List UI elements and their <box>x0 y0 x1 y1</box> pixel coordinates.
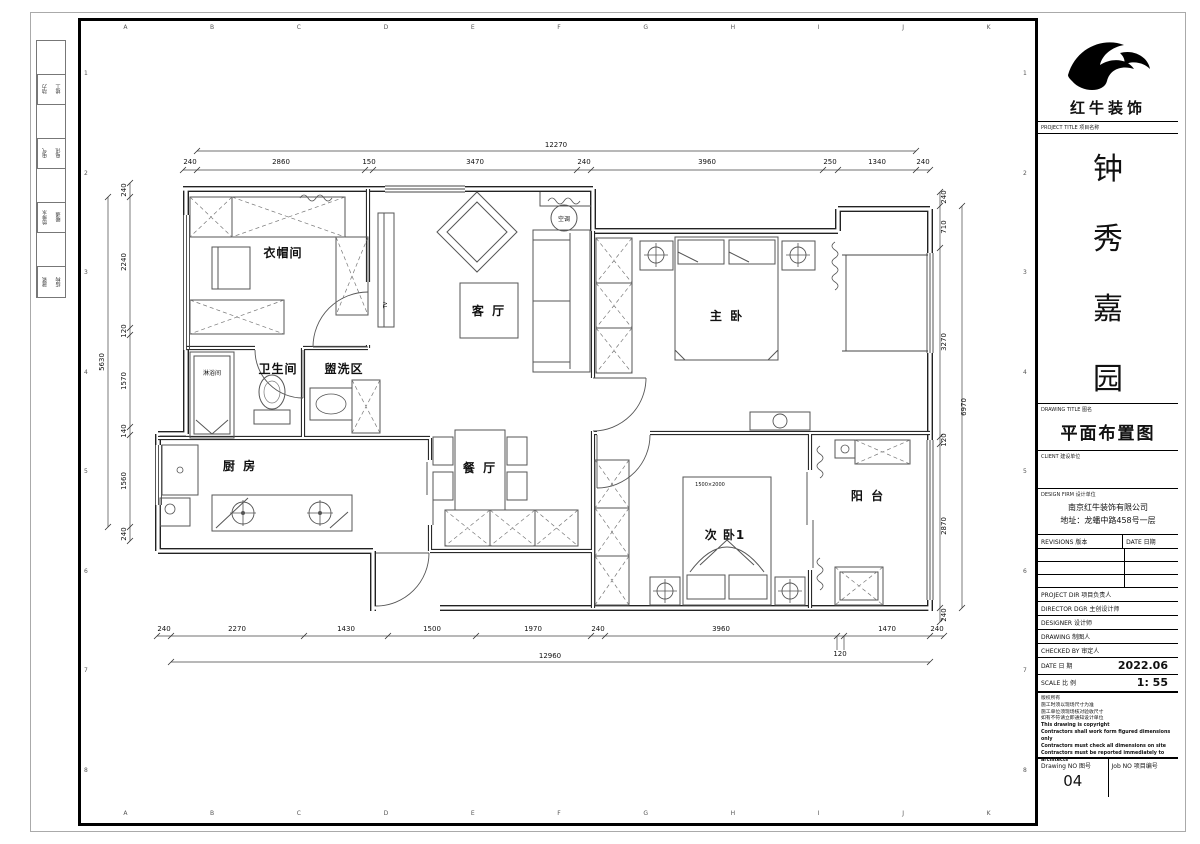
date-value: 2022.06 <box>1118 659 1178 672</box>
dim-text: 3960 <box>712 625 730 633</box>
room-label-living: 客 厅 <box>471 303 506 318</box>
dim-text: 1340 <box>868 158 886 166</box>
firm-address: 地址：龙蟠中路458号一层 <box>1038 515 1178 528</box>
checked-by-label: CHECKED BY 审定人 <box>1038 646 1178 655</box>
kitchen-sink-drain <box>177 467 183 473</box>
drawing-no-value: 04 <box>1041 772 1105 790</box>
scale-label: SCALE 比 例 <box>1038 678 1137 687</box>
drawing-title-section: DRAWING TITLE 图名 平面布置图 <box>1038 404 1178 451</box>
drawing-title: 平面布置图 <box>1038 415 1178 450</box>
dim-text: 240 <box>591 625 604 633</box>
dim-text: 1970 <box>524 625 542 633</box>
dim-total-left: 5630 <box>98 353 106 371</box>
dim-text: 3270 <box>940 333 948 351</box>
dim-text: 240 <box>183 158 196 166</box>
room-label-bathroom: 卫生间 <box>258 361 297 376</box>
project-dir-row: PROJECT DIR 项目负责人 <box>1038 588 1178 602</box>
label-bed-size: 1500×2000 <box>695 482 725 488</box>
job-no-label: Job NO 项目编号 <box>1112 761 1176 770</box>
dim-text: 140 <box>120 424 128 437</box>
dim-text: 710 <box>940 220 948 233</box>
room-label-balcony: 阳 台 <box>851 488 885 503</box>
dim-text: 240 <box>157 625 170 633</box>
director-label: DIRECTOR DGR 主创设计师 <box>1038 604 1178 613</box>
dim-text: 2860 <box>272 158 290 166</box>
design-firm-label: DESIGN FIRM 设计单位 <box>1038 489 1178 500</box>
dim-text: 3470 <box>466 158 484 166</box>
logo-block: 红牛装饰 <box>1038 18 1178 122</box>
dim-text: 3960 <box>698 158 716 166</box>
mirror <box>773 414 787 428</box>
dim-text: 240 <box>120 527 128 540</box>
designer-row: DESIGNER 设计师 <box>1038 616 1178 630</box>
label-ac: 空调 <box>558 215 570 223</box>
scale-row: SCALE 比 例 1: 55 <box>1038 675 1178 692</box>
dim-text: 240 <box>916 158 929 166</box>
room-label-wash-area: 盥洗区 <box>324 361 363 376</box>
room-label-kitchen: 厨 房 <box>223 458 257 473</box>
dim-text: 1470 <box>878 625 896 633</box>
project-title-label: PROJECT TITLE 项目名称 <box>1038 122 1178 134</box>
dim-text: 1430 <box>337 625 355 633</box>
wash-basin <box>316 394 346 414</box>
dim-text: 2870 <box>940 517 948 535</box>
project-dir-label: PROJECT DIR 项目负责人 <box>1038 590 1178 599</box>
dim-total-top: 12270 <box>545 141 567 149</box>
revision-row <box>1038 575 1178 588</box>
dim-text: 240 <box>930 625 943 633</box>
title-block: 红牛装饰 PROJECT TITLE 项目名称 钟秀嘉园 DRAWING TIT… <box>1035 18 1178 826</box>
revisions-label: REVISIONS 版本 <box>1038 535 1122 548</box>
dim-text: 120 <box>940 433 948 446</box>
dim-text: 2240 <box>120 253 128 271</box>
dim-text: 2270 <box>228 625 246 633</box>
drawing-by-label: DRAWING 制图人 <box>1038 632 1178 641</box>
client-label: CLIENT 建设单位 <box>1038 451 1178 462</box>
project-name: 钟秀嘉园 <box>1038 134 1178 404</box>
drawing-no-label: Drawing NO 图号 <box>1041 761 1105 770</box>
design-firm-section: DESIGN FIRM 设计单位 南京红牛装饰有限公司 地址：龙蟠中路458号一… <box>1038 489 1178 535</box>
drawing-number-section: Drawing NO 图号 04 Job NO 项目编号 <box>1038 759 1178 797</box>
client-section: CLIENT 建设单位 <box>1038 451 1178 489</box>
checked-by-row: CHECKED BY 审定人 <box>1038 644 1178 658</box>
dim-text: 240 <box>120 183 128 196</box>
revision-row <box>1038 549 1178 562</box>
floor-plan: 240 2860 150 3470 240 3960 250 1340 240 … <box>0 0 1035 844</box>
director-row: DIRECTOR DGR 主创设计师 <box>1038 602 1178 616</box>
dim-text: 1500 <box>423 625 441 633</box>
drawing-title-label: DRAWING TITLE 图名 <box>1038 404 1178 415</box>
dim-text: 250 <box>823 158 836 166</box>
dim-text: 240 <box>577 158 590 166</box>
dim-text: 240 <box>940 608 948 621</box>
room-label-dining: 餐 厅 <box>463 460 497 475</box>
label-tv: TV <box>383 301 389 309</box>
corner-unit <box>165 504 175 514</box>
scale-value: 1: 55 <box>1137 676 1178 689</box>
room-label-master: 主 卧 <box>710 308 744 323</box>
room-label-shower: 淋浴间 <box>203 369 221 377</box>
dim-text: 120 <box>833 650 846 658</box>
brand-name: 红牛装饰 <box>1070 97 1146 118</box>
designer-label: DESIGNER 设计师 <box>1038 618 1178 627</box>
dim-text: 240 <box>940 190 948 203</box>
copyright-notes: 版权所有施工时须以现场尺寸为准施工单位须现场核对验收尺寸如有不符请立即通知设计单… <box>1038 692 1178 759</box>
dim-text: 120 <box>120 324 128 337</box>
room-label-bedroom2: 次 卧1 <box>705 527 746 542</box>
dim-text: 150 <box>362 158 375 166</box>
dim-text: 1560 <box>120 472 128 490</box>
dim-total-bottom: 12960 <box>539 652 561 660</box>
dim-text: 1570 <box>120 372 128 390</box>
revisions-header: REVISIONS 版本 DATE 日期 <box>1038 535 1178 549</box>
date-row: DATE 日 期 2022.06 <box>1038 658 1178 675</box>
revision-row <box>1038 562 1178 575</box>
date-col-label: DATE 日期 <box>1122 535 1178 548</box>
balcony-sink <box>841 445 849 453</box>
date-label: DATE 日 期 <box>1038 661 1118 670</box>
drawing-by-row: DRAWING 制图人 <box>1038 630 1178 644</box>
insulation-squiggles <box>300 195 838 590</box>
drawing-sheet: ABCDEFGHIJK ABCDEFGHIJK 12345678 1234567… <box>0 0 1200 844</box>
toilet <box>259 375 285 409</box>
toilet-seat <box>264 381 280 403</box>
room-label-cloakroom: 衣帽间 <box>263 245 302 260</box>
dimension-lines <box>108 151 962 662</box>
rednow-bull-icon <box>1062 35 1154 97</box>
dim-total-right: 6970 <box>960 398 968 416</box>
firm-name: 南京红牛装饰有限公司 <box>1038 502 1178 515</box>
